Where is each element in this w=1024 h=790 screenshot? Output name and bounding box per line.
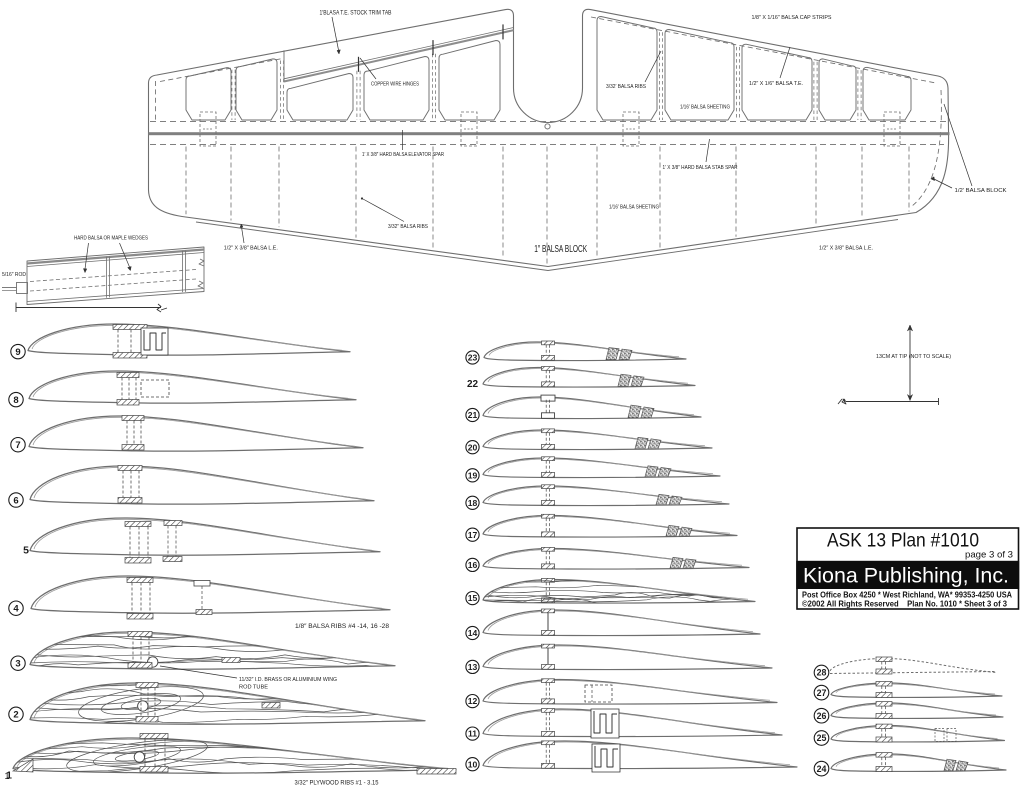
svg-text:1/8″ X 1/16″ BALSA CAP STRIPS: 1/8″ X 1/16″ BALSA CAP STRIPS: [752, 15, 832, 21]
svg-text:ROD TUBE: ROD TUBE: [239, 685, 268, 691]
svg-text:17: 17: [468, 530, 478, 540]
svg-text:11/32″ I.D. BRASS OR ALUMINIUM: 11/32″ I.D. BRASS OR ALUMINIUM WING: [239, 677, 337, 683]
svg-text:1/2″ X 1/6″ BALSA T.E.: 1/2″ X 1/6″ BALSA T.E.: [749, 81, 803, 87]
svg-text:page 3 of 3: page 3 of 3: [965, 550, 1013, 561]
svg-text:11: 11: [468, 729, 477, 739]
svg-text:1/2″ X 3/8″ BALSA L.E.: 1/2″ X 3/8″ BALSA L.E.: [819, 246, 873, 252]
svg-text:9: 9: [15, 347, 20, 358]
svg-text:25: 25: [817, 733, 827, 743]
svg-text:1/16′ BALSA SHEETING: 1/16′ BALSA SHEETING: [609, 205, 659, 211]
svg-text:6: 6: [13, 495, 18, 506]
svg-text:1′ X 3/8″ HARD BALSA STAB SPAR: 1′ X 3/8″ HARD BALSA STAB SPAR: [663, 165, 738, 171]
svg-text:24: 24: [817, 764, 827, 774]
svg-text:27: 27: [817, 688, 827, 698]
svg-text:1/16′ BALSA SHEETING: 1/16′ BALSA SHEETING: [680, 105, 730, 111]
svg-text:26: 26: [817, 711, 827, 721]
svg-text:22: 22: [467, 379, 479, 390]
svg-text:3: 3: [15, 659, 20, 670]
svg-text:21: 21: [468, 410, 478, 420]
svg-text:4: 4: [13, 604, 19, 615]
svg-text:1: 1: [4, 771, 9, 781]
svg-text:13: 13: [468, 662, 478, 672]
svg-text:5: 5: [23, 545, 29, 557]
svg-text:23: 23: [468, 353, 478, 363]
svg-text:1′ X 3/8″ HARD BALSA ELEVATOR: 1′ X 3/8″ HARD BALSA ELEVATOR SPAR: [362, 152, 444, 158]
svg-text:3/32′ BALSA RIBS: 3/32′ BALSA RIBS: [606, 84, 646, 90]
svg-text:HARD BALSA OR MAPLE WEDGES: HARD BALSA OR MAPLE WEDGES: [74, 236, 148, 242]
svg-text:Kiona Publishing, Inc.: Kiona Publishing, Inc.: [803, 564, 1009, 588]
svg-text:15: 15: [468, 593, 478, 603]
svg-text:1′BLASA T.E. STOCK TRIM TAB: 1′BLASA T.E. STOCK TRIM TAB: [320, 11, 392, 17]
svg-text:16: 16: [468, 560, 478, 570]
svg-text:2: 2: [13, 710, 18, 721]
svg-text:3/32″ BALSA RIBS: 3/32″ BALSA RIBS: [388, 224, 428, 230]
svg-text:1/2′ BALSA BLOCK: 1/2′ BALSA BLOCK: [955, 188, 1007, 194]
svg-text:7: 7: [15, 440, 20, 451]
svg-text:COPPER WIRE HINGES: COPPER WIRE HINGES: [371, 82, 419, 88]
svg-text:1/2″ X 3/8″ BALSA L.E.: 1/2″ X 3/8″ BALSA L.E.: [224, 246, 278, 252]
svg-text:1/8″ BALSA RIBS #4 -14, 16 -28: 1/8″ BALSA RIBS #4 -14, 16 -28: [295, 623, 390, 630]
svg-text:12: 12: [468, 696, 478, 706]
svg-text:14: 14: [468, 628, 478, 638]
svg-text:13CM AT TIP (NOT TO SCALE): 13CM AT TIP (NOT TO SCALE): [876, 354, 951, 360]
svg-text:19: 19: [468, 470, 478, 480]
svg-text:3/32″ PLYWOOD RIBS #1 - 3.15: 3/32″ PLYWOOD RIBS #1 - 3.15: [295, 781, 380, 787]
svg-text:1″ BALSA BLOCK: 1″ BALSA BLOCK: [534, 244, 587, 255]
svg-text:28: 28: [817, 668, 827, 678]
svg-text:5/16″ ROD: 5/16″ ROD: [2, 272, 26, 278]
svg-text:20: 20: [468, 442, 478, 452]
svg-text:©2002 All Rights Reserved P: ©2002 All Rights Reserved Plan No. 1010 …: [802, 598, 1007, 608]
svg-text:10: 10: [468, 759, 478, 769]
svg-text:8: 8: [13, 395, 18, 406]
svg-text:ASK 13 Plan #1010: ASK 13 Plan #1010: [827, 530, 979, 552]
svg-text:18: 18: [468, 498, 478, 508]
